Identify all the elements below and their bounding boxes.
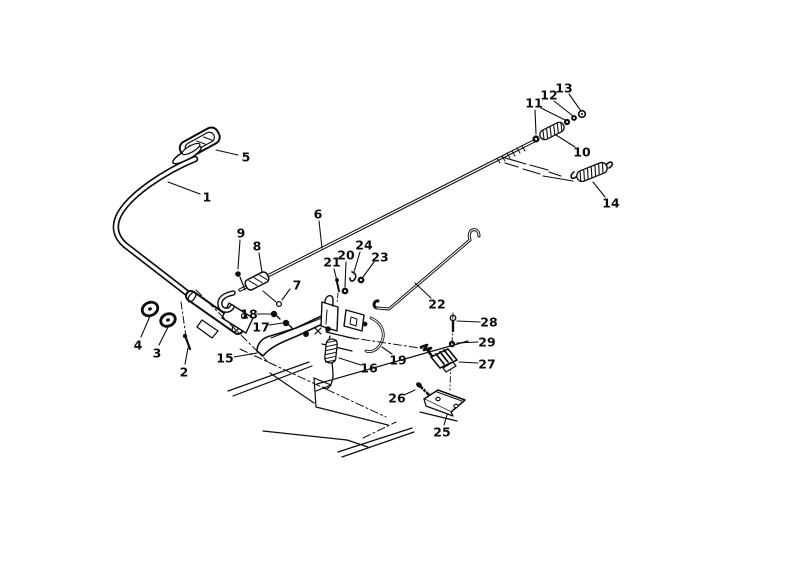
leader-line-16 <box>339 358 361 365</box>
leader-line-17 <box>269 323 283 325</box>
part-number-28: 28 <box>480 315 497 330</box>
part-number-18: 18 <box>240 307 257 322</box>
part-number-19: 19 <box>389 353 406 368</box>
part-number-25: 25 <box>433 425 450 440</box>
part-number-1: 1 <box>203 190 212 205</box>
part-number-7: 7 <box>293 278 302 293</box>
part-number-21: 21 <box>323 255 340 270</box>
leader-line-1 <box>168 182 200 194</box>
part-number-24: 24 <box>355 238 373 253</box>
leader-line-13 <box>569 94 581 111</box>
part-number-27: 27 <box>478 357 495 372</box>
part-number-22: 22 <box>428 297 445 312</box>
leader-line-4 <box>141 316 150 337</box>
part-number-14: 14 <box>602 196 620 211</box>
frame-phantom-upper <box>502 157 573 181</box>
control-rod <box>235 140 536 306</box>
part-number-17: 17 <box>252 320 269 335</box>
leader-line-9 <box>238 240 240 269</box>
leader-line-15 <box>234 353 257 357</box>
part-number-29: 29 <box>478 335 495 350</box>
leader-line-3 <box>159 327 168 345</box>
part-number-10: 10 <box>573 145 591 160</box>
hook-rod <box>374 230 479 309</box>
leader-line-2 <box>185 348 188 364</box>
leader-line-6 <box>319 221 322 248</box>
part-number-15: 15 <box>216 351 233 366</box>
leader-line-27 <box>459 362 478 363</box>
tension-spring <box>571 161 612 183</box>
leader-line-8 <box>259 253 262 272</box>
mount-screw <box>415 381 430 396</box>
part-number-16: 16 <box>360 361 378 376</box>
leader-line-20 <box>345 262 346 287</box>
part-number-4: 4 <box>134 338 143 353</box>
rod-end-hardware <box>532 111 585 143</box>
part-number-23: 23 <box>371 250 388 265</box>
rod-trunnion <box>244 271 270 292</box>
leader-line-28 <box>457 321 480 322</box>
leader-line-11 <box>541 108 565 120</box>
part-number-9: 9 <box>237 226 246 241</box>
leader-line-12 <box>554 101 573 116</box>
leader-line-11 <box>535 110 536 134</box>
pivot-washers-and-pin <box>140 300 190 349</box>
switch-bracket <box>424 390 465 416</box>
diagram-page: 1234567891011121314151617181920212223242… <box>0 0 793 561</box>
part-number-6: 6 <box>314 207 323 222</box>
safety-switch-assembly <box>415 313 465 416</box>
leader-line-29 <box>457 342 478 343</box>
leader-line-24 <box>354 252 360 272</box>
part-number-2: 2 <box>180 365 189 380</box>
leader-line-10 <box>556 135 575 147</box>
part-number-8: 8 <box>253 239 262 254</box>
bent-rod <box>366 318 383 352</box>
parts-diagram: 1234567891011121314151617181920212223242… <box>0 0 793 561</box>
leader-line-25 <box>444 415 447 425</box>
part-number-3: 3 <box>153 346 162 361</box>
part-number-26: 26 <box>388 391 406 406</box>
leader-line-5 <box>216 150 238 155</box>
leader-line-7 <box>282 289 290 300</box>
part-number-5: 5 <box>242 150 251 165</box>
part-number-13: 13 <box>555 81 572 96</box>
